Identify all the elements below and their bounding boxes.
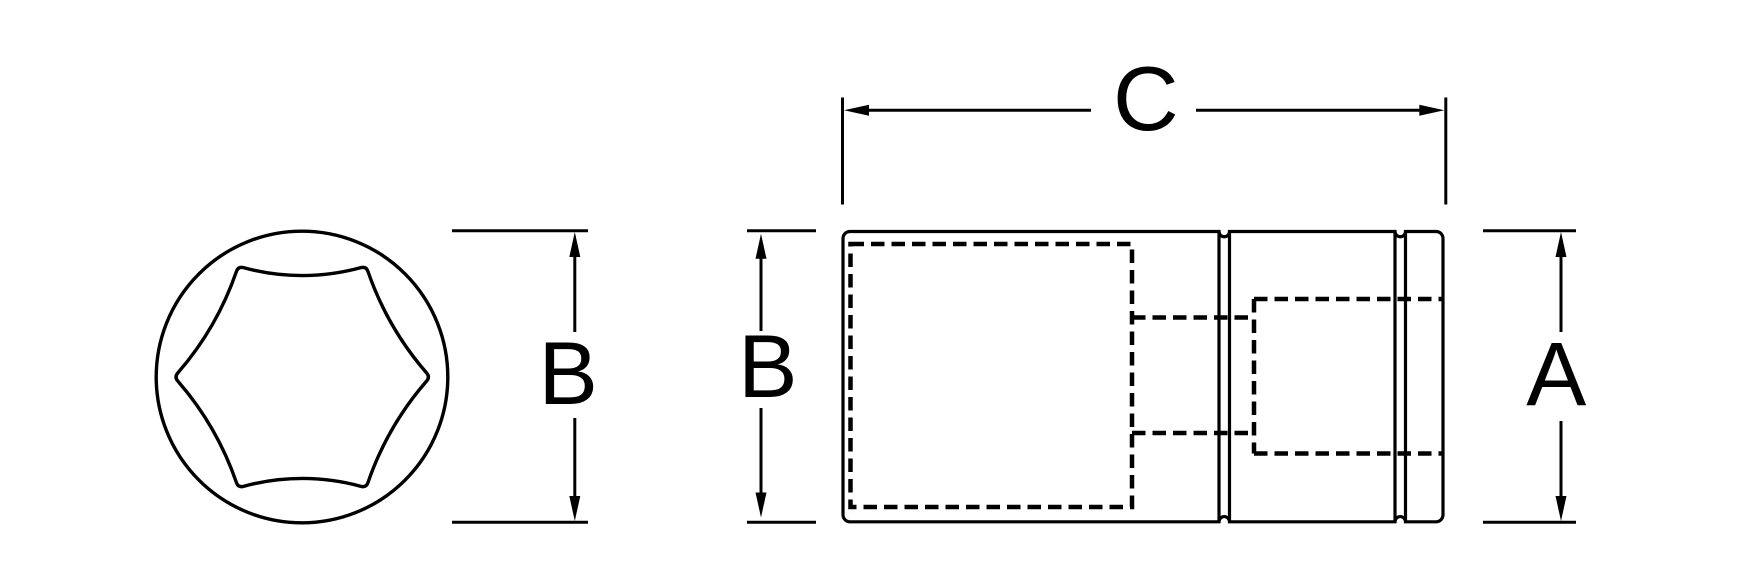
svg-text:A: A — [1526, 325, 1586, 425]
svg-text:C: C — [1113, 49, 1179, 150]
svg-text:B: B — [738, 316, 797, 416]
svg-text:B: B — [539, 323, 598, 423]
